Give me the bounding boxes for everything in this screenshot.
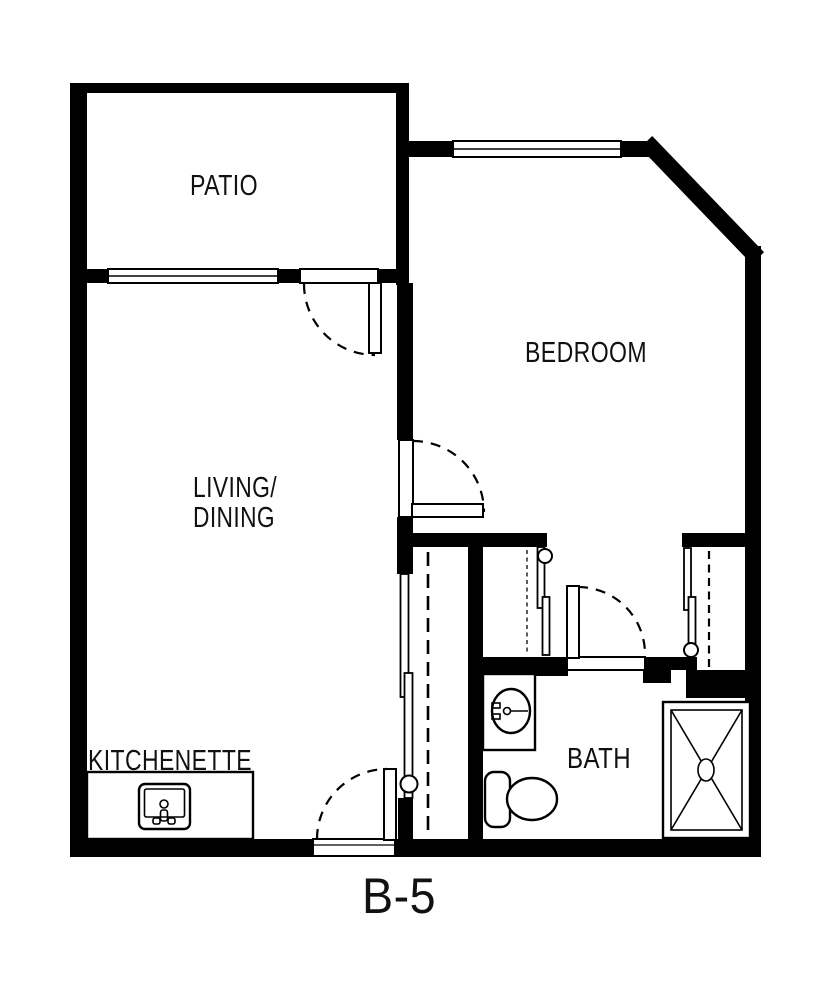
wall-hall-north-east: [682, 533, 746, 547]
hall-closet-west: [527, 547, 552, 655]
patio-window: [108, 269, 278, 283]
bedroom-door-sill: [399, 440, 413, 517]
kitchen-sink-outer: [139, 784, 190, 829]
bath-vanity: [483, 674, 535, 750]
patio-label: PATIO: [190, 170, 258, 202]
wall-bottom: [70, 839, 761, 857]
bedroom-door: [399, 440, 484, 517]
unit-plan-label: B-5: [362, 868, 436, 924]
wall-closet-c-south: [686, 670, 746, 698]
bath-label: BATH: [567, 743, 631, 775]
entry-door-sill: [313, 839, 395, 856]
wall-hall-north-west: [397, 533, 547, 547]
exterior-walls: [70, 83, 761, 857]
windows: [108, 141, 621, 283]
bedroom-door-swing-arc: [413, 441, 484, 512]
patio-door-sill: [300, 269, 378, 283]
bedroom-window: [453, 141, 621, 157]
closet-door-pull: [401, 776, 418, 793]
kitchenette-counter: [87, 772, 253, 839]
living-dining-label-line1: LIVING/: [193, 472, 277, 504]
wall-chase-notch: [671, 670, 686, 684]
wall-diagonal: [652, 148, 752, 252]
bedroom-door-leaf: [412, 504, 483, 517]
wall-left: [70, 83, 87, 857]
wall-closet-east: [468, 547, 483, 839]
patio-door: [300, 269, 381, 355]
entry-door-swing-arc: [317, 769, 387, 839]
wall-living-bedroom-divider: [397, 283, 413, 440]
closet-door-pull: [684, 643, 698, 657]
kitchen-sink: [139, 784, 190, 829]
toilet: [485, 772, 557, 827]
bath-door-leaf: [567, 586, 579, 658]
wall-patio-top: [70, 83, 409, 93]
bedroom-label: BEDROOM: [525, 337, 647, 369]
patio-door-swing-arc: [304, 284, 375, 355]
closet-door-pull: [538, 549, 552, 563]
patio-door-leaf: [369, 283, 381, 353]
closet-bypass-panel: [543, 597, 550, 655]
bath-door-swing-arc: [578, 587, 645, 654]
wall-divider-lower: [398, 798, 413, 839]
kitchenette-label: KITCHENETTE: [88, 745, 252, 777]
living-room-closet: [401, 552, 429, 836]
floor-plan-drawing: PATIO BEDROOM LIVING/ DINING KITCHENETTE…: [0, 0, 834, 998]
living-dining-label-line2: DINING: [193, 502, 275, 534]
toilet-bowl: [507, 778, 557, 820]
shower: [663, 702, 750, 838]
wall-patio-right: [396, 83, 409, 285]
entry-door: [313, 769, 396, 856]
entry-door-leaf: [384, 769, 396, 840]
shower-drain: [698, 759, 714, 781]
floor-plan-page: PATIO BEDROOM LIVING/ DINING KITCHENETTE…: [0, 0, 834, 998]
bath-door: [567, 586, 645, 670]
